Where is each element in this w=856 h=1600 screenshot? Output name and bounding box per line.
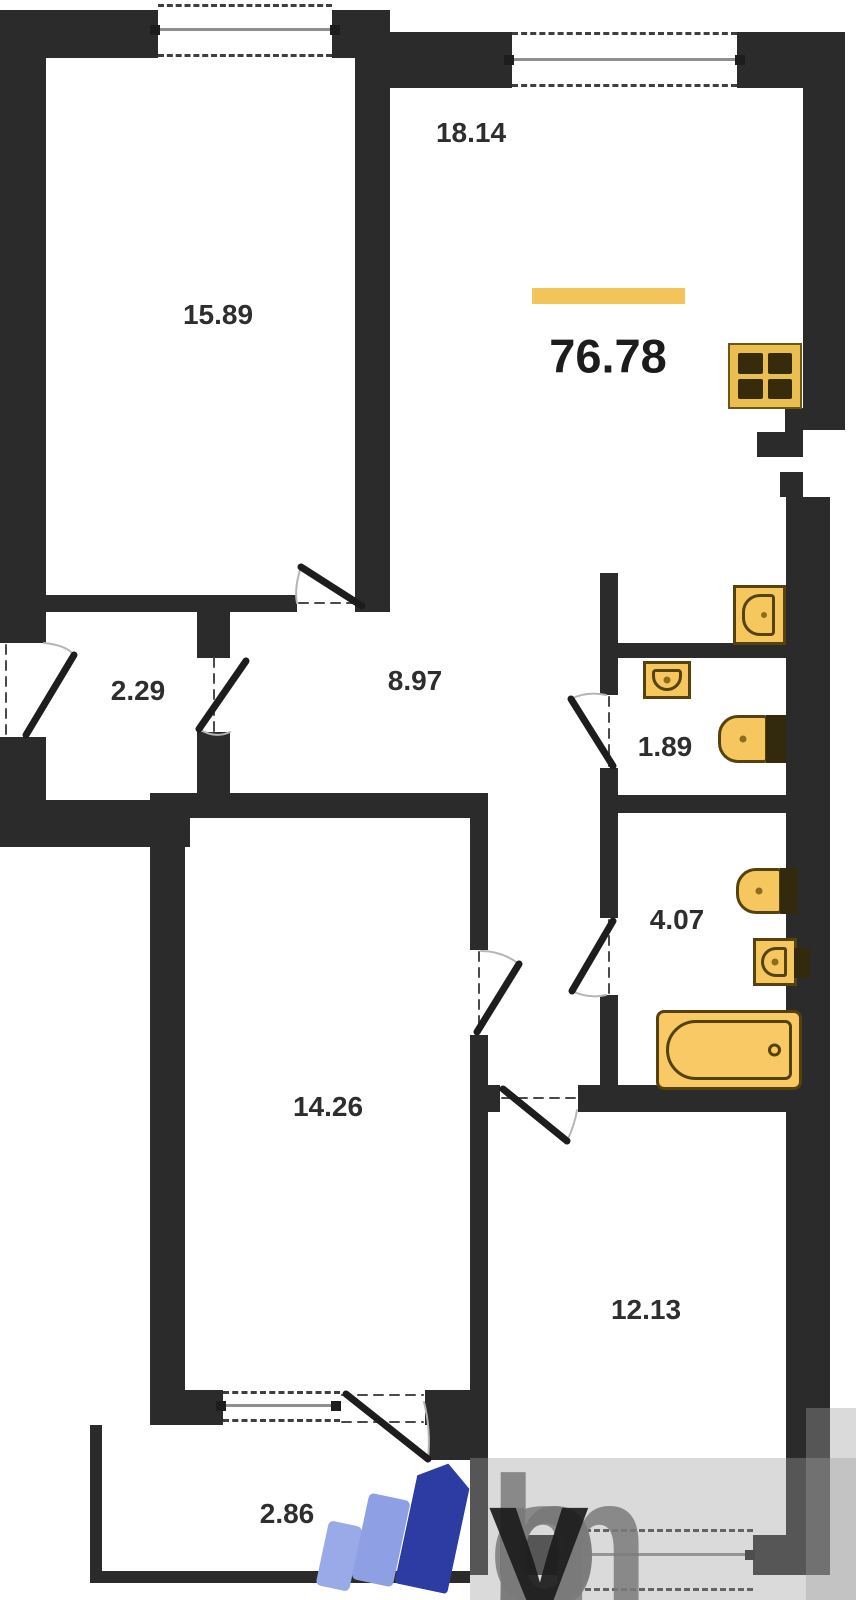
room-area-label: 18.14: [436, 117, 506, 149]
door-room-1213: [502, 1089, 577, 1141]
room-area-label: 15.89: [183, 299, 253, 331]
room-area-label: 14.26: [293, 1091, 363, 1123]
total-area-value: 76.78: [549, 329, 667, 384]
room-area-label: 1.89: [638, 731, 693, 763]
room-area-label: 2.86: [260, 1498, 315, 1530]
watermark-overlay: [806, 1408, 856, 1600]
door-room-1589: [296, 567, 362, 606]
total-area-bar: [532, 288, 685, 304]
floor-plan: 15.89 18.14 2.29 8.97 1.89 4.07 14.26 12…: [0, 0, 856, 1600]
moby-letter: y: [488, 1450, 584, 1600]
door-bathroom: [572, 920, 613, 996]
room-area-label: 8.97: [388, 665, 443, 697]
door-balcony: [342, 1394, 429, 1459]
room-area-label: 2.29: [111, 675, 166, 707]
door-room-1426: [477, 951, 519, 1033]
room-area-label: 12.13: [611, 1294, 681, 1326]
door-symbols: [0, 0, 856, 1600]
door-wc: [571, 694, 613, 766]
room-area-label: 4.07: [650, 904, 705, 936]
door-entrance: [6, 643, 74, 735]
door-closet: [199, 658, 246, 735]
